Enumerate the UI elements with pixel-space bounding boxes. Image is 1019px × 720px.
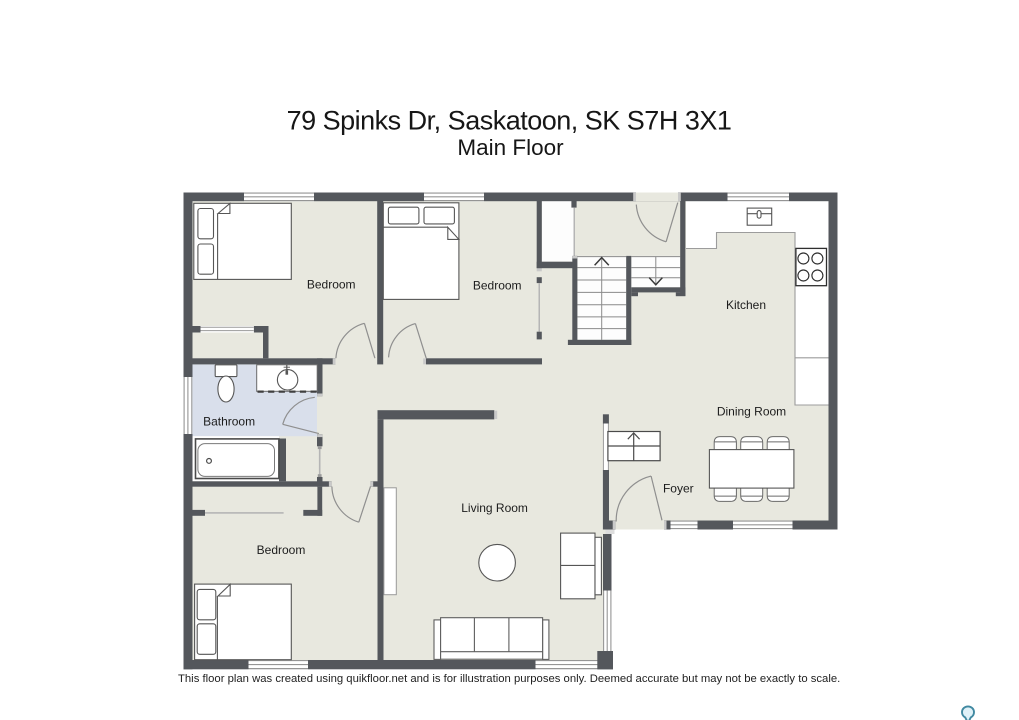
svg-text:Kitchen: Kitchen — [726, 298, 766, 312]
svg-text:Living Room: Living Room — [461, 501, 528, 515]
svg-text:Dining Room: Dining Room — [717, 404, 786, 418]
svg-text:Foyer: Foyer — [663, 481, 694, 495]
svg-text:Bedroom: Bedroom — [307, 278, 356, 292]
svg-text:Bedroom: Bedroom — [257, 543, 306, 557]
svg-text:Bedroom: Bedroom — [473, 278, 522, 292]
svg-text:79 Spinks Dr, Saskatoon, SK S7: 79 Spinks Dr, Saskatoon, SK S7H 3X1 — [287, 106, 732, 136]
svg-text:This floor plan was created us: This floor plan was created using quikfl… — [178, 673, 840, 685]
svg-text:Main Floor: Main Floor — [457, 135, 564, 160]
svg-text:Bathroom: Bathroom — [203, 414, 255, 428]
